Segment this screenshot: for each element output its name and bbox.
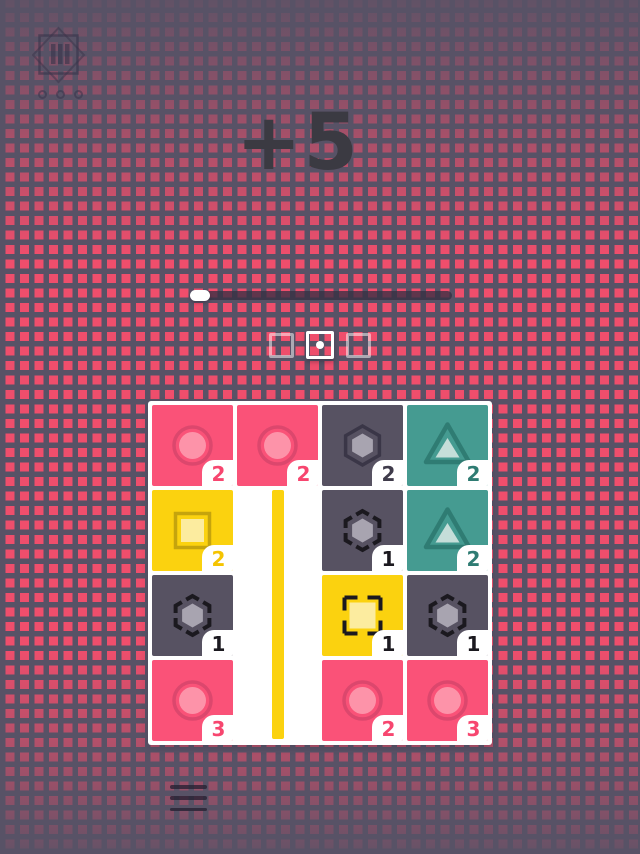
- tile-square[interactable]: 2: [152, 490, 233, 571]
- tile-circle[interactable]: 2: [237, 405, 318, 486]
- count-value: 2: [297, 464, 311, 484]
- count-badge: 1: [372, 545, 403, 571]
- game-screen: +5 2222212111323: [0, 0, 640, 854]
- hamburger-menu-icon: [170, 796, 207, 800]
- game-board: 2222212111323: [148, 401, 492, 745]
- level-dots-icon: [38, 90, 83, 99]
- level-select-button[interactable]: [32, 26, 86, 108]
- tile-circle[interactable]: 2: [152, 405, 233, 486]
- count-value: 3: [212, 719, 226, 739]
- progress-thumb[interactable]: [190, 290, 210, 301]
- score-label: +5: [0, 104, 618, 182]
- count-value: 2: [212, 464, 226, 484]
- count-value: 1: [467, 634, 481, 654]
- count-badge: 1: [202, 630, 233, 656]
- menu-button[interactable]: [170, 783, 210, 813]
- count-badge: 2: [287, 460, 318, 486]
- tile-hexagon[interactable]: 2: [322, 405, 403, 486]
- count-badge: 2: [457, 460, 488, 486]
- count-badge: 2: [202, 460, 233, 486]
- count-badge: 2: [457, 545, 488, 571]
- count-badge: 1: [457, 630, 488, 656]
- count-badge: 2: [372, 460, 403, 486]
- count-value: 2: [467, 464, 481, 484]
- count-value: 1: [382, 634, 396, 654]
- hamburger-menu-icon: [170, 808, 207, 812]
- tile-hexagon[interactable]: 1: [322, 490, 403, 571]
- tile-hexagon[interactable]: 1: [407, 575, 488, 656]
- count-badge: 1: [372, 630, 403, 656]
- count-badge: 2: [372, 715, 403, 741]
- tile-hexagon[interactable]: 1: [152, 575, 233, 656]
- count-badge: 2: [202, 545, 233, 571]
- count-badge: 3: [202, 715, 233, 741]
- level-indicator-inactive[interactable]: [269, 333, 294, 358]
- tile-triangle[interactable]: 2: [407, 490, 488, 571]
- count-value: 3: [467, 719, 481, 739]
- fold-stripe: [272, 490, 284, 739]
- progress-track: [190, 291, 452, 300]
- count-value: 1: [382, 549, 396, 569]
- count-value: 2: [212, 549, 226, 569]
- tile-square[interactable]: 1: [322, 575, 403, 656]
- count-value: 2: [467, 549, 481, 569]
- tile-triangle[interactable]: 2: [407, 405, 488, 486]
- level-select-icon: [32, 26, 86, 86]
- level-indicators: [0, 330, 640, 360]
- count-value: 2: [382, 719, 396, 739]
- level-indicator-inactive[interactable]: [346, 333, 371, 358]
- count-badge: 3: [457, 715, 488, 741]
- progress-bar: [190, 284, 452, 306]
- hamburger-menu-icon: [170, 785, 207, 789]
- level-indicator-active[interactable]: [306, 331, 334, 359]
- tile-circle[interactable]: 2: [322, 660, 403, 741]
- tile-circle[interactable]: 3: [407, 660, 488, 741]
- count-value: 2: [382, 464, 396, 484]
- count-value: 1: [212, 634, 226, 654]
- tile-circle[interactable]: 3: [152, 660, 233, 741]
